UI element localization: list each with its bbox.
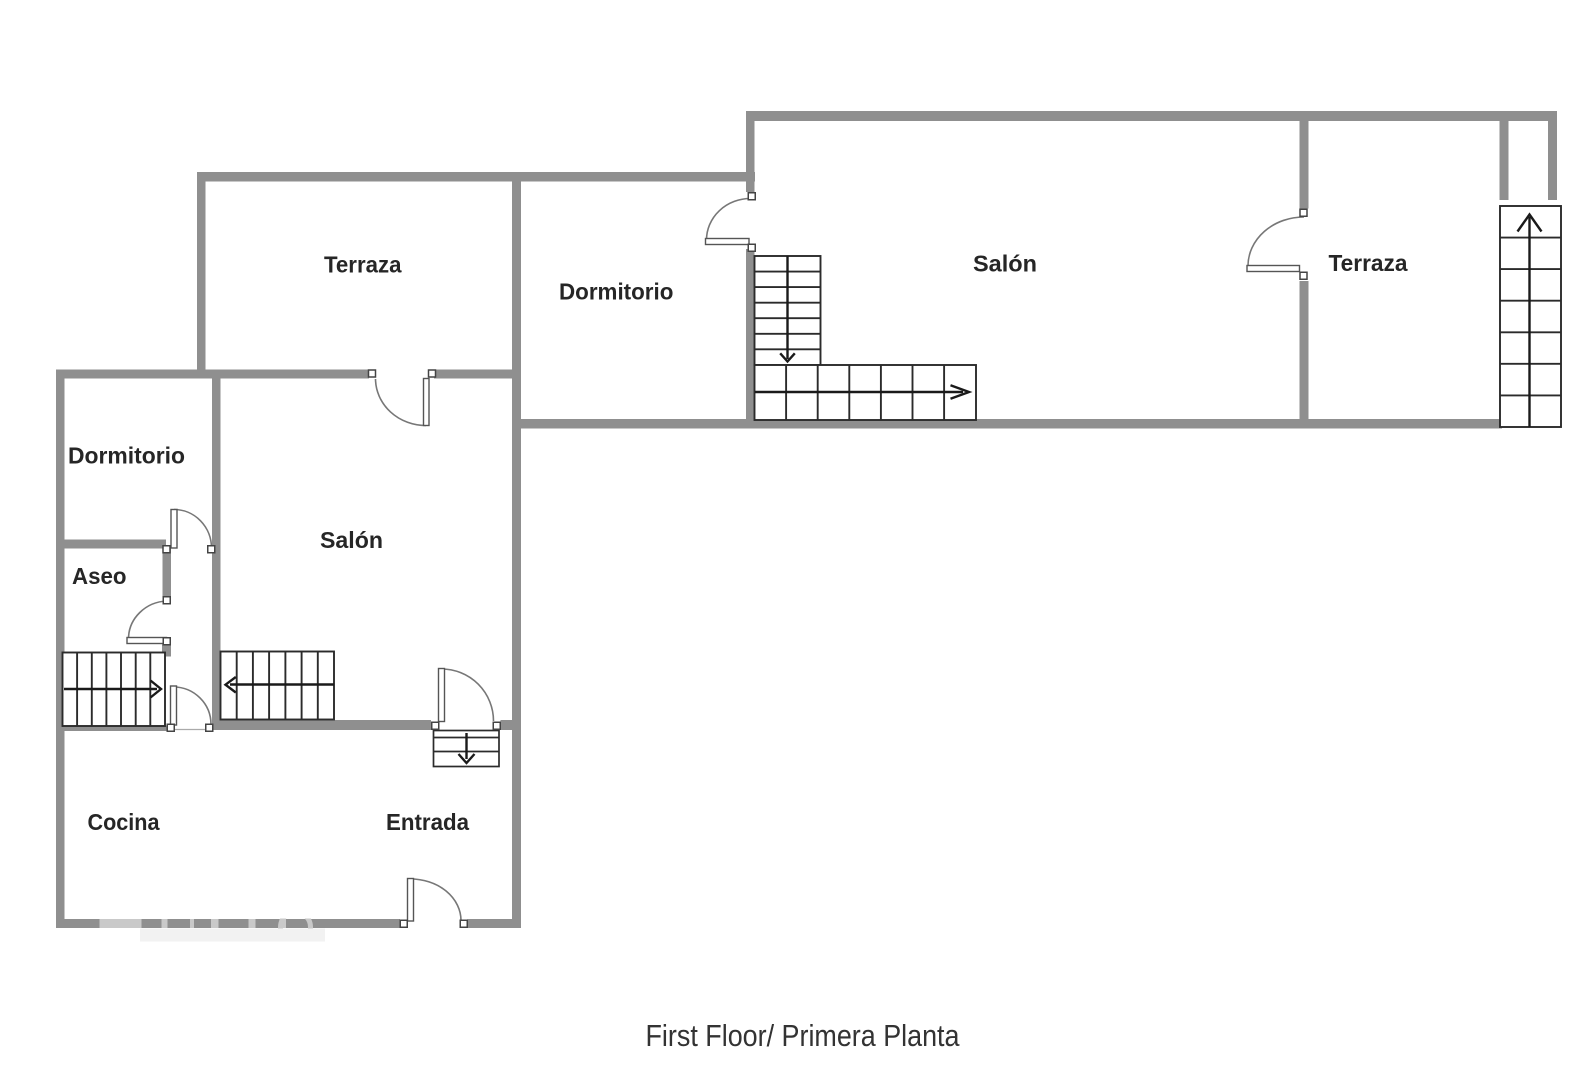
svg-text:Salón: Salón xyxy=(320,527,383,553)
svg-text:Terraza: Terraza xyxy=(1329,250,1409,276)
svg-text:Aseo: Aseo xyxy=(72,563,127,589)
svg-text:Cocina: Cocina xyxy=(88,809,161,835)
svg-text:Terraza: Terraza xyxy=(324,252,402,278)
svg-text:Entrada: Entrada xyxy=(386,809,470,835)
svg-text:First Floor/ Primera Planta: First Floor/ Primera Planta xyxy=(646,1018,961,1053)
svg-text:Salón: Salón xyxy=(973,251,1037,277)
svg-text:Dormitorio: Dormitorio xyxy=(559,279,673,305)
svg-text:Dormitorio: Dormitorio xyxy=(68,443,185,469)
